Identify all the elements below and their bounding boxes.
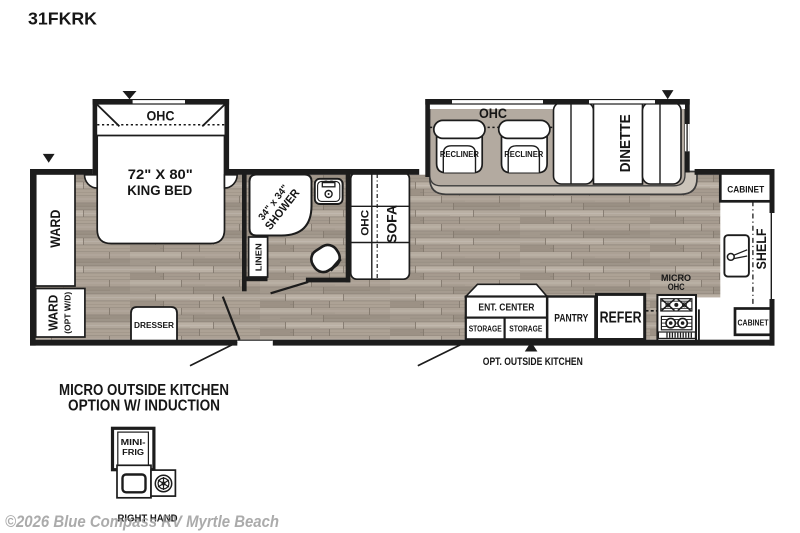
svg-text:STORAGE: STORAGE — [509, 324, 542, 333]
svg-text:OHC: OHC — [360, 210, 372, 236]
svg-text:DRESSER: DRESSER — [134, 320, 175, 330]
svg-text:MINI-: MINI- — [121, 437, 146, 447]
svg-text:STORAGE: STORAGE — [469, 324, 502, 333]
svg-text:RECLINER: RECLINER — [440, 149, 480, 159]
svg-text:WARD: WARD — [46, 295, 61, 331]
svg-text:(OPT W/D): (OPT W/D) — [64, 292, 73, 334]
svg-text:31FKRK: 31FKRK — [28, 9, 97, 29]
svg-text:DINETTE: DINETTE — [617, 114, 634, 172]
svg-text:OHC: OHC — [147, 109, 175, 124]
svg-text:SOFA: SOFA — [385, 205, 400, 243]
svg-text:RECLINER: RECLINER — [504, 149, 544, 159]
svg-text:FRIG: FRIG — [122, 447, 144, 457]
svg-text:LINEN: LINEN — [253, 243, 263, 271]
svg-text:SHELF: SHELF — [754, 229, 769, 270]
svg-text:OHC: OHC — [479, 106, 507, 121]
svg-text:CABINET: CABINET — [727, 185, 764, 195]
svg-text:©2026 Blue Compass RV Myrtle B: ©2026 Blue Compass RV Myrtle Beach — [5, 513, 279, 531]
svg-text:PANTRY: PANTRY — [554, 313, 588, 325]
svg-text:KING BED: KING BED — [127, 183, 192, 198]
svg-text:ENT. CENTER: ENT. CENTER — [478, 303, 535, 314]
svg-text:CABINET: CABINET — [738, 318, 769, 327]
svg-text:REFER: REFER — [600, 309, 642, 326]
svg-text:OPTION W/ INDUCTION: OPTION W/ INDUCTION — [68, 398, 220, 415]
svg-text:OPT. OUTSIDE KITCHEN: OPT. OUTSIDE KITCHEN — [483, 356, 583, 368]
svg-text:WARD: WARD — [48, 209, 63, 247]
svg-text:OHC: OHC — [668, 282, 685, 292]
svg-text:72" X 80": 72" X 80" — [128, 167, 193, 182]
